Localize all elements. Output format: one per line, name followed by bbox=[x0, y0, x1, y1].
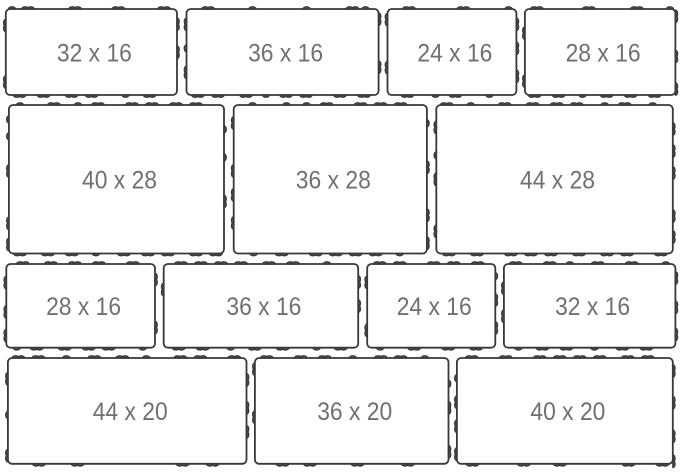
svg-text:36 x 16: 36 x 16 bbox=[226, 293, 301, 321]
svg-text:28 x 16: 28 x 16 bbox=[566, 39, 641, 67]
svg-text:40 x 28: 40 x 28 bbox=[82, 167, 157, 195]
svg-text:36 x 28: 36 x 28 bbox=[296, 167, 371, 195]
svg-text:24 x 16: 24 x 16 bbox=[417, 39, 492, 67]
svg-text:24 x 16: 24 x 16 bbox=[397, 293, 472, 321]
svg-text:28 x 16: 28 x 16 bbox=[46, 293, 121, 321]
svg-text:36 x 20: 36 x 20 bbox=[317, 398, 392, 426]
svg-text:32 x 16: 32 x 16 bbox=[57, 39, 132, 67]
svg-text:36 x 16: 36 x 16 bbox=[248, 39, 323, 67]
svg-text:40 x 20: 40 x 20 bbox=[530, 398, 605, 426]
svg-text:44 x 20: 44 x 20 bbox=[93, 398, 168, 426]
svg-text:44 x 28: 44 x 28 bbox=[520, 167, 595, 195]
svg-text:32 x 16: 32 x 16 bbox=[555, 293, 630, 321]
